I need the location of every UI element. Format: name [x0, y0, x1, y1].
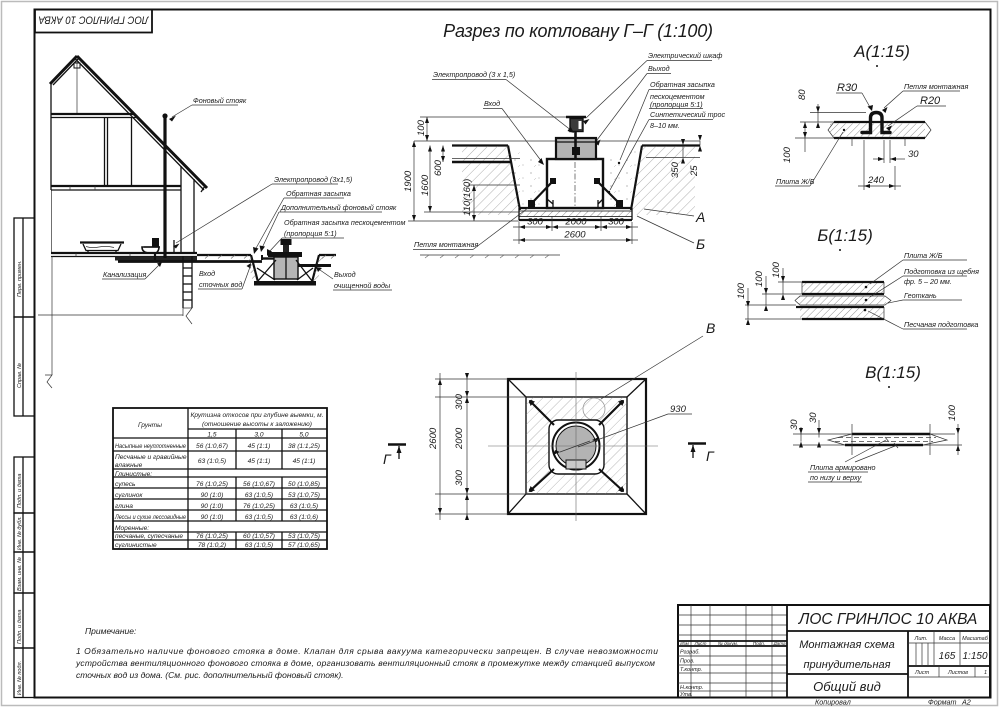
svg-text:Обратная засыпка: Обратная засыпка: [286, 189, 351, 198]
svg-text:принудительная: принудительная: [804, 659, 891, 671]
svg-text:100: 100: [947, 404, 958, 421]
svg-text:Подготовка из щебня: Подготовка из щебня: [904, 267, 979, 276]
svg-text:сточных вод из дома. (См. рис.: сточных вод из дома. (См. рис. дополните…: [76, 670, 344, 680]
svg-text:(пропорция 5:1): (пропорция 5:1): [650, 100, 703, 109]
svg-text:1:150: 1:150: [962, 651, 987, 662]
svg-text:Лессы и сухие лессовидные: Лессы и сухие лессовидные: [114, 513, 186, 521]
svg-text:Инв. № дубл.: Инв. № дубл.: [17, 516, 23, 550]
svg-text:очищенной воды: очищенной воды: [334, 281, 391, 290]
svg-text:45 (1:1): 45 (1:1): [248, 458, 271, 465]
svg-text:(отношение высоты к заложению): (отношение высоты к заложению): [202, 421, 312, 428]
svg-text:63 (1:0,5): 63 (1:0,5): [245, 492, 273, 499]
svg-text:165: 165: [939, 651, 956, 662]
svg-text:50 (1:0,85): 50 (1:0,85): [288, 481, 320, 488]
svg-text:1900: 1900: [403, 170, 414, 192]
svg-text:90 (1:0): 90 (1:0): [201, 514, 224, 521]
svg-text:устройства вентиляционного фон: устройства вентиляционного фонового стоя…: [75, 658, 655, 668]
svg-text:90 (1:0): 90 (1:0): [201, 492, 224, 499]
svg-text:1: 1: [984, 670, 987, 676]
svg-text:100: 100: [771, 261, 782, 278]
svg-text:Копировал: Копировал: [815, 698, 851, 707]
svg-text:Обратная засыпка: Обратная засыпка: [650, 80, 715, 89]
svg-text:Насыпные неуплотненные: Насыпные неуплотненные: [115, 443, 186, 450]
svg-text:1,5: 1,5: [207, 432, 216, 439]
svg-text:80: 80: [797, 89, 808, 100]
svg-text:Лист: Лист: [914, 670, 930, 676]
svg-text:А: А: [695, 209, 705, 225]
svg-text:Синтетический трос: Синтетический трос: [650, 110, 726, 119]
svg-text:Инв. № подл.: Инв. № подл.: [17, 661, 23, 695]
svg-text:56 (1:0,67): 56 (1:0,67): [243, 481, 275, 488]
svg-text:Фоновый стояк: Фоновый стояк: [193, 96, 247, 105]
svg-text:R20: R20: [920, 95, 941, 107]
svg-text:Песчаная подготовка: Песчаная подготовка: [904, 320, 978, 329]
svg-text:63 (1:0,5): 63 (1:0,5): [245, 514, 273, 521]
svg-text:78 (1:0,2): 78 (1:0,2): [198, 542, 226, 549]
svg-text:(пропорция 5:1): (пропорция 5:1): [284, 229, 337, 238]
svg-text:63 (1:0,5): 63 (1:0,5): [290, 503, 318, 510]
svg-text:Разраб.: Разраб.: [680, 650, 700, 656]
svg-text:Взам. инв. №: Взам. инв. №: [17, 557, 23, 591]
svg-text:Электропровод (3х1,5): Электропровод (3х1,5): [274, 175, 352, 184]
svg-text:100: 100: [782, 146, 793, 163]
svg-text:R30: R30: [837, 82, 858, 94]
svg-text:Лист: Лист: [694, 641, 707, 646]
svg-text:Плита Ж/Б: Плита Ж/Б: [776, 177, 815, 186]
svg-text:глина: глина: [115, 503, 133, 510]
svg-text:Геоткань: Геоткань: [904, 291, 937, 300]
svg-text:ЛОС ГРИНЛОС 10 АКВА: ЛОС ГРИНЛОС 10 АКВА: [39, 14, 150, 26]
svg-text:350: 350: [670, 161, 681, 178]
svg-text:60 (1:0,57): 60 (1:0,57): [243, 533, 275, 540]
svg-text:Электрический шкаф: Электрический шкаф: [648, 51, 722, 60]
svg-text:110(160): 110(160): [462, 179, 473, 216]
svg-text:76 (1:0,25): 76 (1:0,25): [243, 503, 275, 510]
svg-text:фр. 5 – 20 мм.: фр. 5 – 20 мм.: [904, 277, 952, 286]
svg-text:930: 930: [670, 404, 687, 415]
svg-text:8–10 мм.: 8–10 мм.: [650, 121, 680, 130]
svg-text:45 (1:1): 45 (1:1): [248, 443, 271, 450]
svg-text:3,0: 3,0: [254, 432, 263, 439]
svg-text:Листов: Листов: [947, 670, 968, 676]
svg-text:Вход: Вход: [484, 99, 500, 108]
svg-text:В: В: [706, 320, 715, 336]
svg-text:Б(1:15): Б(1:15): [817, 226, 872, 245]
svg-text:Утв.: Утв.: [679, 692, 693, 698]
svg-text:Лит.: Лит.: [914, 636, 928, 642]
svg-text:300: 300: [454, 393, 465, 410]
svg-text:по низу и верху: по низу и верху: [810, 473, 862, 482]
svg-text:Подп.: Подп.: [753, 641, 765, 646]
svg-text:Примечание:: Примечание:: [85, 626, 137, 636]
svg-text:Выход: Выход: [334, 270, 356, 279]
svg-text:А2: А2: [961, 698, 971, 707]
svg-text:Масса: Масса: [939, 636, 955, 642]
svg-text:600: 600: [433, 159, 444, 176]
svg-text:63 (1:0,6): 63 (1:0,6): [290, 514, 318, 521]
svg-text:Песчаные и гравийные: Песчаные и гравийные: [115, 453, 187, 461]
svg-text:30: 30: [789, 419, 800, 430]
svg-text:38 (1:1,25): 38 (1:1,25): [288, 443, 320, 450]
svg-text:Разрез по котловану Г–Г (1:10: Разрез по котловану Г–Г (1:100): [443, 21, 713, 41]
svg-text:53 (1:0,75): 53 (1:0,75): [288, 533, 320, 540]
svg-text:Общий вид: Общий вид: [813, 679, 881, 694]
svg-text:300: 300: [527, 217, 544, 228]
svg-text:Грунты: Грунты: [138, 422, 162, 429]
svg-text:Подп. и дата: Подп. и дата: [17, 610, 23, 644]
svg-text:30: 30: [908, 149, 919, 160]
svg-text:ЛОС ГРИНЛОС 10 АКВА: ЛОС ГРИНЛОС 10 АКВА: [798, 611, 978, 628]
svg-text:2000: 2000: [454, 427, 465, 450]
svg-text:100: 100: [736, 282, 747, 299]
svg-text:Петля монтажная: Петля монтажная: [414, 240, 479, 249]
svg-text:63 (1:0,5): 63 (1:0,5): [245, 542, 273, 549]
svg-text:суглинок: суглинок: [115, 492, 143, 499]
svg-text:90 (1:0): 90 (1:0): [201, 503, 224, 510]
svg-text:Дополнительный фоновый стояк: Дополнительный фоновый стояк: [280, 203, 397, 212]
svg-text:супесь: супесь: [115, 481, 136, 488]
svg-text:Т.контр.: Т.контр.: [680, 667, 702, 673]
svg-text:влажные: влажные: [115, 462, 143, 469]
svg-text:56 (1:0,67): 56 (1:0,67): [196, 443, 228, 450]
svg-text:Подп. и дата: Подп. и дата: [17, 474, 23, 508]
svg-text:Плита армировано: Плита армировано: [810, 463, 876, 472]
svg-text:Справ. №: Справ. №: [17, 363, 23, 388]
svg-text:76 (1:0,25): 76 (1:0,25): [196, 481, 228, 488]
svg-text:30: 30: [808, 412, 819, 423]
svg-text:1600: 1600: [420, 174, 431, 196]
svg-text:Дата: Дата: [772, 641, 786, 646]
svg-text:5,0: 5,0: [299, 432, 308, 439]
svg-text:Петля монтажная: Петля монтажная: [904, 82, 969, 91]
svg-text:100: 100: [416, 119, 427, 136]
svg-text:Глинистые:: Глинистые:: [115, 471, 152, 478]
svg-text:53 (1:0,75): 53 (1:0,75): [288, 492, 320, 499]
svg-text:Н.контр.: Н.контр.: [680, 685, 703, 691]
svg-text:Вход: Вход: [199, 269, 215, 278]
svg-text:Формат: Формат: [928, 698, 957, 707]
svg-text:240: 240: [867, 175, 885, 186]
svg-text:Выход: Выход: [648, 64, 670, 73]
svg-text:Монтажная схема: Монтажная схема: [799, 639, 894, 651]
svg-text:Масштаб: Масштаб: [962, 636, 989, 642]
svg-text:45 (1:1): 45 (1:1): [293, 458, 316, 465]
svg-text:2600: 2600: [563, 230, 586, 241]
svg-text:57 (1:0,65): 57 (1:0,65): [288, 542, 320, 549]
svg-text:Электропровод (3 х 1,5): Электропровод (3 х 1,5): [433, 70, 515, 79]
svg-text:А(1:15): А(1:15): [853, 42, 910, 61]
svg-text:63 (1:0,5): 63 (1:0,5): [198, 458, 226, 465]
svg-text:№ докум.: № докум.: [718, 641, 738, 646]
svg-text:Моренные:: Моренные:: [115, 525, 149, 532]
svg-text:Пров.: Пров.: [680, 659, 695, 665]
svg-text:300: 300: [454, 469, 465, 486]
svg-text:2000: 2000: [564, 217, 587, 228]
svg-text:100: 100: [754, 270, 765, 287]
svg-text:Б: Б: [696, 236, 705, 252]
svg-text:Обратная засыпка пескоцементом: Обратная засыпка пескоцементом: [284, 218, 406, 227]
svg-text:суглинистые: суглинистые: [115, 542, 157, 549]
svg-text:25: 25: [689, 165, 700, 177]
svg-text:Плита Ж/Б: Плита Ж/Б: [904, 251, 943, 260]
svg-text:300: 300: [608, 217, 625, 228]
svg-text:Изм: Изм: [680, 641, 689, 646]
svg-text:сточных вод: сточных вод: [199, 280, 242, 289]
svg-text:Канализация: Канализация: [103, 270, 147, 279]
svg-text:76 (1:0,25): 76 (1:0,25): [196, 533, 228, 540]
svg-text:1 Обязательно наличие фонового: 1 Обязательно наличие фонового стояка в …: [76, 646, 658, 656]
svg-text:В(1:15): В(1:15): [865, 363, 921, 382]
svg-text:2600: 2600: [428, 427, 439, 450]
svg-text:Перв. примен.: Перв. примен.: [17, 260, 23, 297]
svg-text:песчаные, супесчаные: песчаные, супесчаные: [115, 533, 183, 540]
svg-text:Крутизна откосов при глубине в: Крутизна откосов при глубине выемки, м.: [191, 411, 324, 419]
